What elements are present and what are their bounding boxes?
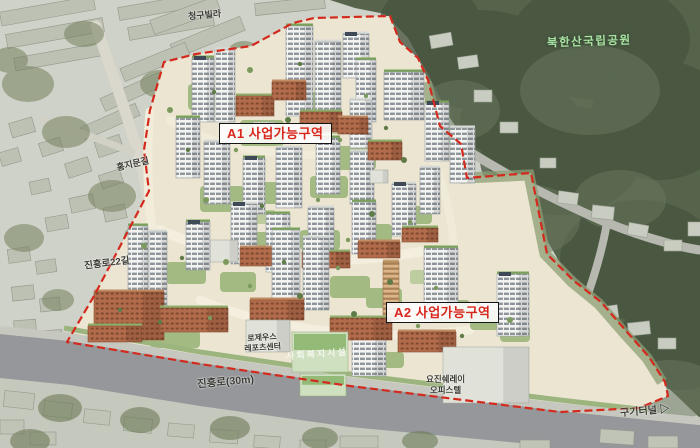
birdseye-map-canvas [0, 0, 700, 448]
site-plan-rendering: 청구빌라 북한산국립공원 A1 사업가능구역 홍지문길 진흥로22길 A2 사업… [0, 0, 700, 448]
